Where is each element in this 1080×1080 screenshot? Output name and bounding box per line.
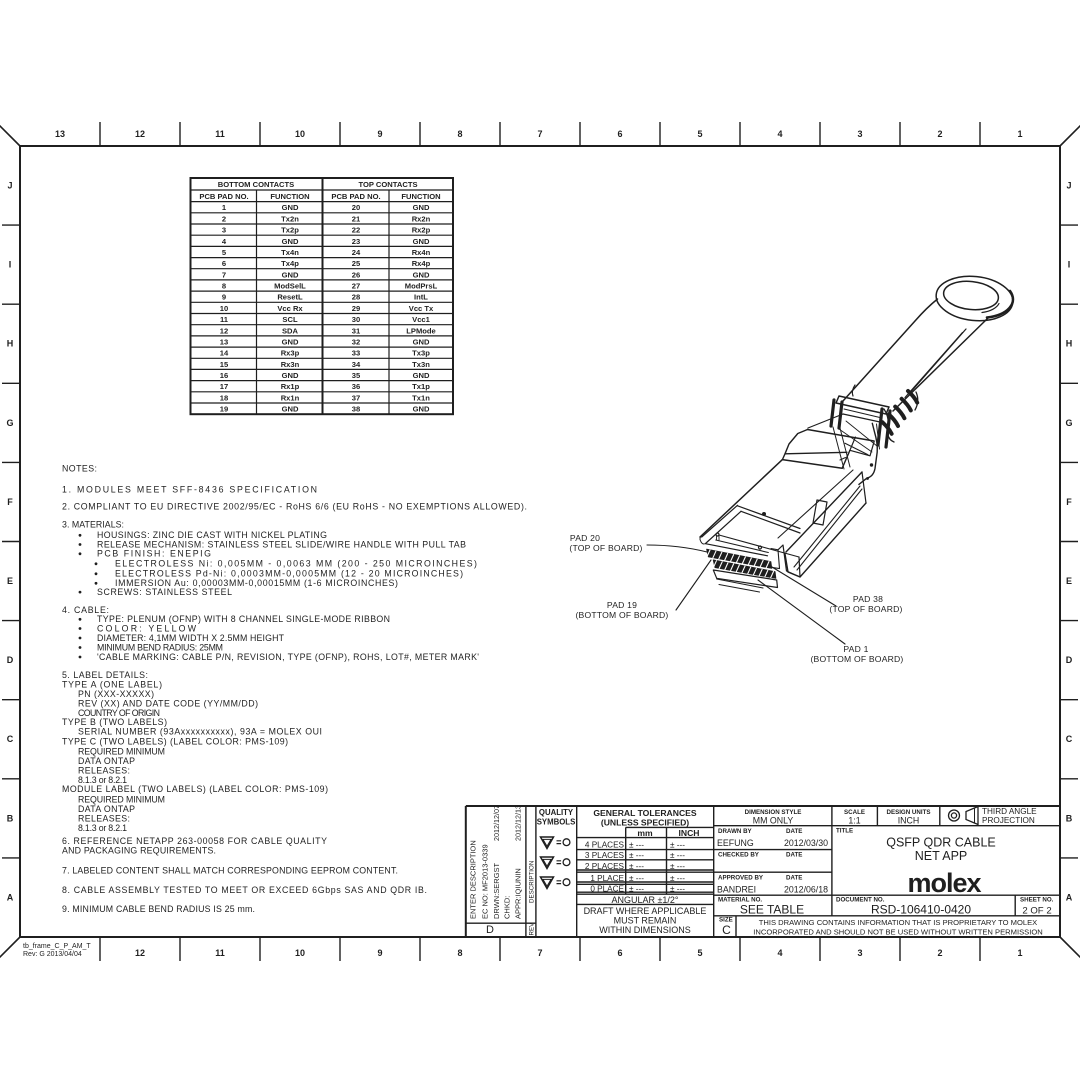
- svg-text:SDA: SDA: [282, 326, 299, 335]
- svg-text:D: D: [486, 924, 494, 936]
- svg-text:DATA ONTAP: DATA ONTAP: [78, 756, 135, 766]
- svg-text:Rx1n: Rx1n: [281, 393, 300, 402]
- svg-text:Rx3n: Rx3n: [281, 360, 300, 369]
- svg-text:Rx1p: Rx1p: [281, 382, 300, 391]
- svg-text:± ---: ± ---: [629, 851, 644, 860]
- svg-text:PAD 38: PAD 38: [853, 594, 883, 604]
- svg-text:± ---: ± ---: [629, 884, 644, 893]
- svg-text:INCH: INCH: [678, 828, 699, 838]
- svg-text:24: 24: [352, 248, 361, 257]
- svg-text:RSD-106410-0420: RSD-106410-0420: [871, 903, 971, 917]
- svg-text:22: 22: [352, 226, 360, 235]
- svg-text:SEE TABLE: SEE TABLE: [740, 903, 804, 917]
- svg-text:CHECKED BY: CHECKED BY: [718, 852, 760, 859]
- svg-text:± ---: ± ---: [670, 874, 685, 883]
- svg-text:BOTTOM CONTACTS: BOTTOM CONTACTS: [218, 180, 295, 189]
- svg-text:MM ONLY: MM ONLY: [753, 816, 794, 826]
- svg-text:30: 30: [352, 315, 360, 324]
- svg-text:DRAWN BY: DRAWN BY: [718, 828, 753, 835]
- svg-text:10: 10: [295, 948, 305, 958]
- svg-text:3. MATERIALS:: 3. MATERIALS:: [62, 520, 124, 530]
- svg-text:4: 4: [777, 129, 782, 139]
- svg-text:GND: GND: [282, 237, 299, 246]
- svg-text:RELEASES:: RELEASES:: [78, 766, 130, 776]
- svg-text:32: 32: [352, 338, 360, 347]
- svg-text:2012/03/30: 2012/03/30: [784, 838, 828, 848]
- svg-text:12: 12: [135, 948, 145, 958]
- svg-text:D: D: [1066, 655, 1073, 665]
- svg-text:0 PLACE: 0 PLACE: [590, 884, 624, 893]
- svg-text:27: 27: [352, 282, 360, 291]
- svg-text:7: 7: [537, 948, 542, 958]
- svg-text:2: 2: [937, 129, 942, 139]
- svg-text:8.1.3 or 8.2.1: 8.1.3 or 8.2.1: [78, 823, 127, 833]
- svg-text:RELEASES:: RELEASES:: [78, 814, 130, 824]
- svg-text:23: 23: [352, 237, 360, 246]
- svg-text:7: 7: [537, 129, 542, 139]
- svg-text:CHKD:: CHKD:: [503, 896, 512, 919]
- svg-text:1: 1: [1017, 129, 1022, 139]
- svg-text:GND: GND: [413, 203, 430, 212]
- svg-text:GND: GND: [282, 371, 299, 380]
- svg-text:ModSelL: ModSelL: [274, 282, 306, 291]
- svg-text:QSFP QDR CABLE: QSFP QDR CABLE: [886, 836, 996, 850]
- svg-text:DATE: DATE: [786, 875, 802, 882]
- svg-text:± ---: ± ---: [670, 840, 685, 849]
- svg-text:2: 2: [937, 948, 942, 958]
- svg-text:± ---: ± ---: [670, 862, 685, 871]
- svg-text:GENERAL TOLERANCES: GENERAL TOLERANCES: [593, 808, 697, 818]
- svg-text:Tx2p: Tx2p: [281, 226, 299, 235]
- svg-text:28: 28: [352, 293, 360, 302]
- svg-text:C: C: [7, 734, 14, 744]
- svg-text:6. REFERENCE NETAPP 263-00058: 6. REFERENCE NETAPP 263-00058 FOR CABLE …: [62, 836, 327, 846]
- svg-text:A: A: [7, 892, 14, 902]
- svg-text:SERIAL NUMBER (93Axxxxxxxxxx),: SERIAL NUMBER (93Axxxxxxxxxx), 93A = MOL…: [78, 727, 322, 737]
- svg-text:18: 18: [220, 393, 228, 402]
- svg-text:INCH: INCH: [898, 816, 920, 826]
- svg-text:2 OF 2: 2 OF 2: [1022, 906, 1051, 917]
- svg-text:2. COMPLIANT TO EU DIRECTIVE 2: 2. COMPLIANT TO EU DIRECTIVE 2002/95/EC …: [62, 502, 527, 512]
- svg-text:29: 29: [352, 304, 360, 313]
- svg-text:(UNLESS SPECIFIED): (UNLESS SPECIFIED): [601, 818, 689, 828]
- svg-text:13: 13: [55, 129, 65, 139]
- svg-text:10: 10: [295, 129, 305, 139]
- svg-text:ENTER DESCRIPTION: ENTER DESCRIPTION: [469, 840, 478, 919]
- svg-text:molex: molex: [907, 868, 981, 898]
- svg-text:TOP CONTACTS: TOP CONTACTS: [358, 180, 417, 189]
- svg-text:QUALITY: QUALITY: [539, 808, 574, 817]
- svg-text:16: 16: [220, 371, 228, 380]
- svg-text:APPROVED BY: APPROVED BY: [718, 875, 764, 882]
- svg-text:APPR:IQIUNIN: APPR:IQIUNIN: [514, 868, 523, 919]
- svg-text:9: 9: [222, 293, 226, 302]
- svg-text:I: I: [1068, 260, 1071, 270]
- svg-text:5: 5: [697, 948, 702, 958]
- svg-text:1 PLACE: 1 PLACE: [590, 874, 624, 883]
- svg-text:GND: GND: [413, 338, 430, 347]
- svg-text:F: F: [7, 497, 13, 507]
- svg-text:A: A: [1066, 892, 1073, 902]
- svg-text:COLOR: YELLOW: COLOR: YELLOW: [97, 623, 197, 633]
- svg-text:4: 4: [222, 237, 227, 246]
- svg-text:9: 9: [377, 129, 382, 139]
- svg-text:(BOTTOM OF BOARD): (BOTTOM OF BOARD): [811, 654, 904, 664]
- svg-text:3: 3: [857, 129, 862, 139]
- svg-text:F: F: [1066, 497, 1072, 507]
- svg-text:AND PACKAGING REQUIREMENTS.: AND PACKAGING REQUIREMENTS.: [62, 846, 216, 856]
- svg-text:Tx4n: Tx4n: [281, 248, 299, 257]
- svg-text:TYPE A (ONE LABEL): TYPE A (ONE LABEL): [62, 679, 162, 689]
- svg-text:± ---: ± ---: [670, 884, 685, 893]
- svg-text:Vcc Rx: Vcc Rx: [277, 304, 303, 313]
- svg-text:35: 35: [352, 371, 361, 380]
- svg-text:ELECTROLESS Pd-Ni: 0,0003MM-0,: ELECTROLESS Pd-Ni: 0,0003MM-0,0005MM (12…: [115, 569, 463, 579]
- svg-text:GND: GND: [282, 203, 299, 212]
- svg-text:17: 17: [220, 382, 228, 391]
- svg-text:2012/12/13: 2012/12/13: [514, 805, 523, 841]
- svg-text:8. CABLE ASSEMBLY TESTED TO ME: 8. CABLE ASSEMBLY TESTED TO MEET OR EXCE…: [62, 885, 427, 895]
- svg-text:15: 15: [220, 360, 229, 369]
- svg-text:3: 3: [857, 948, 862, 958]
- svg-text:PROJECTION: PROJECTION: [982, 816, 1035, 825]
- svg-text:DRAFT WHERE APPLICABLE: DRAFT WHERE APPLICABLE: [584, 906, 707, 916]
- svg-text:1. MODULES MEET SFF-8436 SPECI: 1. MODULES MEET SFF-8436 SPECIFICATION: [62, 485, 317, 495]
- svg-text:Rx2n: Rx2n: [412, 214, 431, 223]
- svg-text:'CABLE MARKING: CABLE P/N, REV: 'CABLE MARKING: CABLE P/N, REVISION, TYP…: [97, 652, 479, 662]
- svg-text:Tx3n: Tx3n: [412, 360, 430, 369]
- svg-text:NET APP: NET APP: [915, 849, 968, 863]
- svg-text:SCL: SCL: [282, 315, 298, 324]
- svg-text:4: 4: [777, 948, 782, 958]
- svg-text:6: 6: [617, 948, 622, 958]
- svg-text:E: E: [1066, 576, 1072, 586]
- svg-text:11: 11: [215, 129, 225, 139]
- svg-text:19: 19: [220, 405, 228, 414]
- svg-text:GND: GND: [413, 405, 430, 414]
- svg-text:DATE: DATE: [786, 828, 802, 835]
- svg-text:INCORPORATED AND SHOULD NOT BE: INCORPORATED AND SHOULD NOT BE USED WITH…: [753, 928, 1042, 937]
- svg-text:ModPrsL: ModPrsL: [405, 282, 438, 291]
- svg-text:11: 11: [220, 315, 229, 324]
- svg-text:(TOP OF BOARD): (TOP OF BOARD): [569, 543, 642, 553]
- svg-text:33: 33: [352, 349, 360, 358]
- svg-text:11: 11: [215, 948, 225, 958]
- svg-text:C: C: [1066, 734, 1073, 744]
- svg-text:DIAMETER: 4,1MM WIDTH X 2.5MM: DIAMETER: 4,1MM WIDTH X 2.5MM HEIGHT: [97, 633, 285, 643]
- svg-text:H: H: [7, 339, 14, 349]
- svg-text:3: 3: [222, 226, 226, 235]
- svg-text:MODULE LABEL (TWO LABELS) (LAB: MODULE LABEL (TWO LABELS) (LABEL COLOR: …: [62, 784, 328, 794]
- svg-text:MUST REMAIN: MUST REMAIN: [614, 916, 677, 926]
- svg-text:NOTES:: NOTES:: [62, 464, 97, 474]
- svg-text:2: 2: [222, 214, 226, 223]
- svg-text:GND: GND: [413, 237, 430, 246]
- svg-text:9. MINIMUM CABLE BEND RADIUS I: 9. MINIMUM CABLE BEND RADIUS IS 25 mm.: [62, 904, 255, 914]
- svg-text:REQUIRED MINIMUM: REQUIRED MINIMUM: [78, 747, 165, 757]
- svg-text:PCB PAD NO.: PCB PAD NO.: [331, 192, 380, 201]
- svg-text:GND: GND: [282, 270, 299, 279]
- svg-text:2 PLACES: 2 PLACES: [585, 862, 625, 871]
- svg-text:GND: GND: [282, 405, 299, 414]
- svg-text:2012/06/18: 2012/06/18: [784, 885, 828, 895]
- svg-text:Vcc1: Vcc1: [412, 315, 431, 324]
- svg-text:GND: GND: [282, 338, 299, 347]
- svg-text:SHEET NO.: SHEET NO.: [1020, 897, 1054, 904]
- svg-text:SYMBOLS: SYMBOLS: [537, 818, 576, 827]
- svg-text:TITLE: TITLE: [836, 828, 853, 835]
- svg-text:Rx4p: Rx4p: [412, 259, 431, 268]
- svg-text:12: 12: [220, 326, 228, 335]
- svg-text:mm: mm: [637, 828, 653, 838]
- svg-text:7. LABELED CONTENT SHALL MATCH: 7. LABELED CONTENT SHALL MATCH CORRESPON…: [62, 865, 398, 875]
- svg-text:8: 8: [457, 129, 462, 139]
- svg-text:5. LABEL DETAILS:: 5. LABEL DETAILS:: [62, 670, 148, 680]
- svg-text:5: 5: [222, 248, 227, 257]
- svg-text:IntL: IntL: [414, 293, 428, 302]
- svg-text:21: 21: [352, 214, 361, 223]
- svg-text:PCB FINISH: ENEPIG: PCB FINISH: ENEPIG: [97, 549, 211, 559]
- svg-text:1:1: 1:1: [848, 816, 860, 826]
- svg-text:Tx1n: Tx1n: [412, 393, 430, 402]
- svg-text:ANGULAR ±1/2°: ANGULAR ±1/2°: [611, 895, 678, 905]
- svg-text:± ---: ± ---: [670, 851, 685, 860]
- svg-text:34: 34: [352, 360, 361, 369]
- svg-text:5: 5: [697, 129, 702, 139]
- svg-text:(TOP OF BOARD): (TOP OF BOARD): [829, 604, 902, 614]
- svg-text:J: J: [7, 181, 12, 191]
- svg-text:C: C: [722, 923, 731, 937]
- svg-text:D: D: [7, 655, 14, 665]
- svg-text:SCREWS: STAINLESS STEEL: SCREWS: STAINLESS STEEL: [97, 587, 232, 597]
- svg-text:± ---: ± ---: [629, 874, 644, 883]
- svg-text:PAD 19: PAD 19: [607, 600, 637, 610]
- svg-text:E: E: [7, 576, 13, 586]
- svg-text:1: 1: [222, 203, 227, 212]
- svg-text:BANDREI: BANDREI: [717, 885, 756, 895]
- svg-text:PCB PAD NO.: PCB PAD NO.: [199, 192, 248, 201]
- svg-text:PN (XXX-XXXXX): PN (XXX-XXXXX): [78, 689, 154, 699]
- svg-text:± ---: ± ---: [629, 840, 644, 849]
- svg-text:38: 38: [352, 405, 360, 414]
- svg-text:6: 6: [617, 129, 622, 139]
- svg-text:G: G: [1065, 418, 1072, 428]
- svg-text:26: 26: [352, 270, 360, 279]
- svg-text:G: G: [6, 418, 13, 428]
- svg-text:EEFUNG: EEFUNG: [717, 838, 754, 848]
- svg-text:H: H: [1066, 339, 1073, 349]
- svg-text:WITHIN DIMENSIONS: WITHIN DIMENSIONS: [599, 925, 691, 935]
- svg-text:Tx2n: Tx2n: [281, 214, 299, 223]
- svg-text:DRWN:SERGST: DRWN:SERGST: [492, 862, 501, 919]
- svg-text:Tx3p: Tx3p: [412, 349, 430, 358]
- svg-text:PAD 20: PAD 20: [570, 533, 600, 543]
- svg-text:I: I: [9, 260, 12, 270]
- svg-text:2012/12/07: 2012/12/07: [492, 805, 501, 841]
- svg-text:(BOTTOM OF BOARD): (BOTTOM OF BOARD): [576, 610, 669, 620]
- svg-text:Vcc Tx: Vcc Tx: [409, 304, 434, 313]
- svg-text:25: 25: [352, 259, 361, 268]
- svg-text:9: 9: [377, 948, 382, 958]
- svg-text:4 PLACES: 4 PLACES: [585, 840, 625, 849]
- svg-text:Rx2p: Rx2p: [412, 226, 431, 235]
- svg-text:± ---: ± ---: [629, 862, 644, 871]
- svg-text:GND: GND: [413, 371, 430, 380]
- svg-text:DATA ONTAP: DATA ONTAP: [78, 804, 135, 814]
- svg-text:J: J: [1066, 181, 1071, 191]
- svg-text:THIRD ANGLE: THIRD ANGLE: [982, 807, 1037, 816]
- svg-text:12: 12: [135, 129, 145, 139]
- svg-text:ResetL: ResetL: [277, 293, 303, 302]
- svg-text:THIS DRAWING CONTAINS INFORMAT: THIS DRAWING CONTAINS INFORMATION THAT I…: [759, 918, 1037, 927]
- svg-text:13: 13: [220, 338, 228, 347]
- svg-text:Tx4p: Tx4p: [281, 259, 299, 268]
- svg-text:LPMode: LPMode: [406, 326, 436, 335]
- svg-text:7: 7: [222, 270, 226, 279]
- svg-text:FUNCTION: FUNCTION: [401, 192, 440, 201]
- svg-text:37: 37: [352, 393, 360, 402]
- svg-text:8: 8: [222, 282, 226, 291]
- svg-text:B: B: [7, 813, 14, 823]
- svg-text:20: 20: [352, 203, 360, 212]
- svg-text:10: 10: [220, 304, 228, 313]
- svg-text:31: 31: [352, 326, 361, 335]
- svg-text:DESCRIPTION: DESCRIPTION: [529, 861, 536, 903]
- svg-text:REV: REV: [529, 922, 536, 936]
- svg-text:B: B: [1066, 813, 1073, 823]
- svg-text:Rx4n: Rx4n: [412, 248, 431, 257]
- svg-text:GND: GND: [413, 270, 430, 279]
- svg-text:6: 6: [222, 259, 226, 268]
- svg-text:TYPE B (TWO LABELS): TYPE B (TWO LABELS): [62, 717, 167, 727]
- svg-text:Rx3p: Rx3p: [281, 349, 300, 358]
- svg-text:REQUIRED MINIMUM: REQUIRED MINIMUM: [78, 794, 165, 804]
- svg-text:8: 8: [457, 948, 462, 958]
- svg-text:EC NO: MF2013-0339: EC NO: MF2013-0339: [481, 844, 490, 919]
- svg-text:Tx1p: Tx1p: [412, 382, 430, 391]
- svg-text:DATE: DATE: [786, 852, 802, 859]
- svg-text:MINIMUM BEND RADIUS: 25MM: MINIMUM BEND RADIUS: 25MM: [97, 642, 223, 652]
- svg-text:1: 1: [1017, 948, 1022, 958]
- svg-text:REV (XX) AND DATE CODE (YY/MM/: REV (XX) AND DATE CODE (YY/MM/DD): [78, 699, 258, 709]
- svg-text:14: 14: [220, 349, 229, 358]
- svg-text:TYPE C (TWO LABELS) (LABEL COL: TYPE C (TWO LABELS) (LABEL COLOR: PMS-10…: [62, 736, 288, 746]
- svg-text:Rev: G 2013/04/04: Rev: G 2013/04/04: [23, 951, 82, 958]
- svg-text:FUNCTION: FUNCTION: [270, 192, 309, 201]
- svg-text:PAD 1: PAD 1: [843, 644, 868, 654]
- svg-text:tb_frame_C_P_AM_T: tb_frame_C_P_AM_T: [23, 943, 91, 950]
- svg-text:3 PLACES: 3 PLACES: [585, 851, 625, 860]
- svg-text:ELECTROLESS Ni: 0,005MM - 0,00: ELECTROLESS Ni: 0,005MM - 0,0063 MM (200…: [115, 559, 477, 569]
- svg-text:36: 36: [352, 382, 360, 391]
